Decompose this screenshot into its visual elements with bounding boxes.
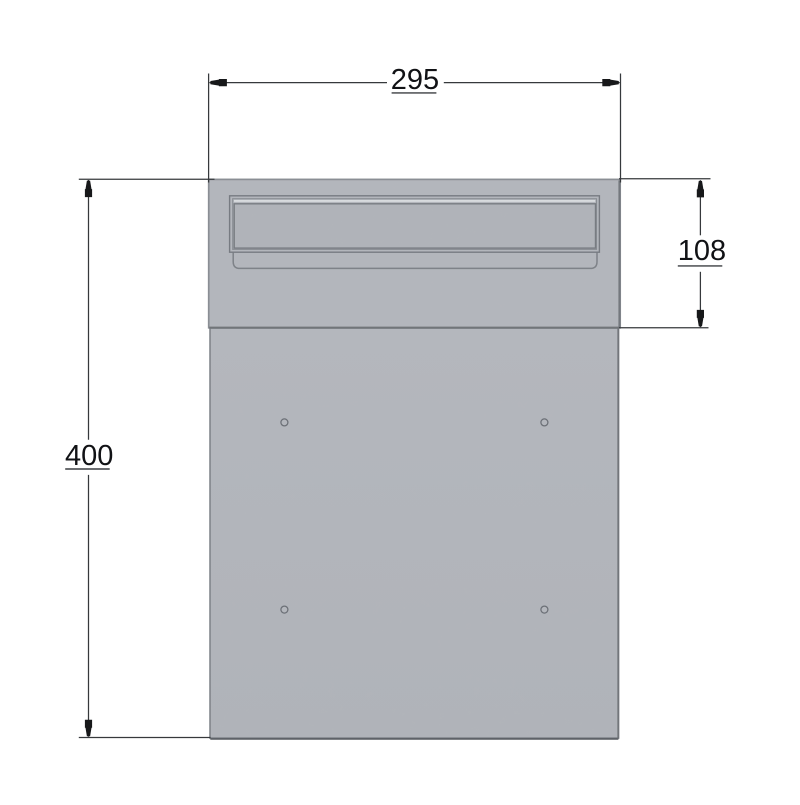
svg-text:295: 295 (391, 64, 439, 96)
svg-text:400: 400 (65, 440, 113, 472)
svg-text:108: 108 (678, 235, 726, 267)
